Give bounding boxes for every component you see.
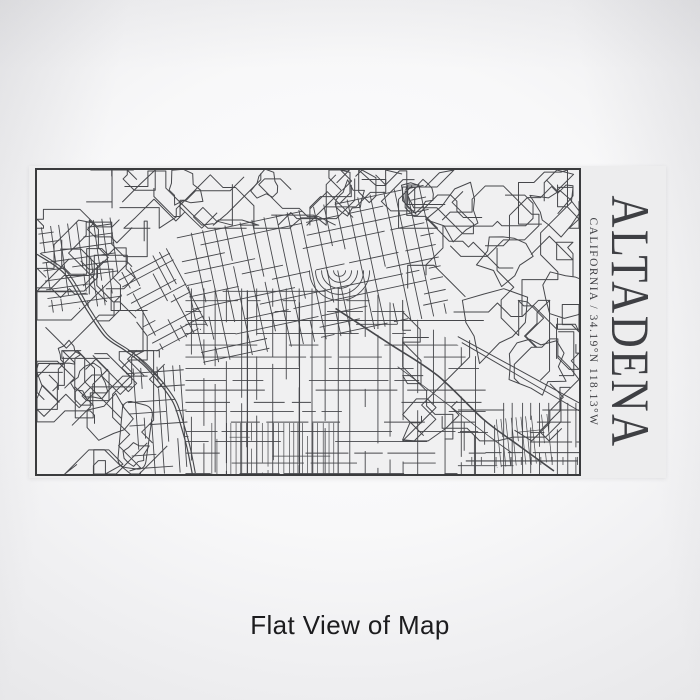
label-subtitle-vertical: CALIFORNIA / 34.19°N 118.13°W xyxy=(588,218,600,427)
map-frame xyxy=(35,168,581,476)
mockup-canvas: CALIFORNIA / 34.19°N 118.13°W ALTADENA F… xyxy=(0,0,700,700)
street-map-graphic xyxy=(37,170,579,474)
label-title-vertical: ALTADENA xyxy=(603,195,657,448)
label-text-panel: CALIFORNIA / 34.19°N 118.13°W ALTADENA xyxy=(581,166,666,478)
bottle-label-flat: CALIFORNIA / 34.19°N 118.13°W ALTADENA xyxy=(29,166,666,478)
view-caption: Flat View of Map xyxy=(0,610,700,641)
